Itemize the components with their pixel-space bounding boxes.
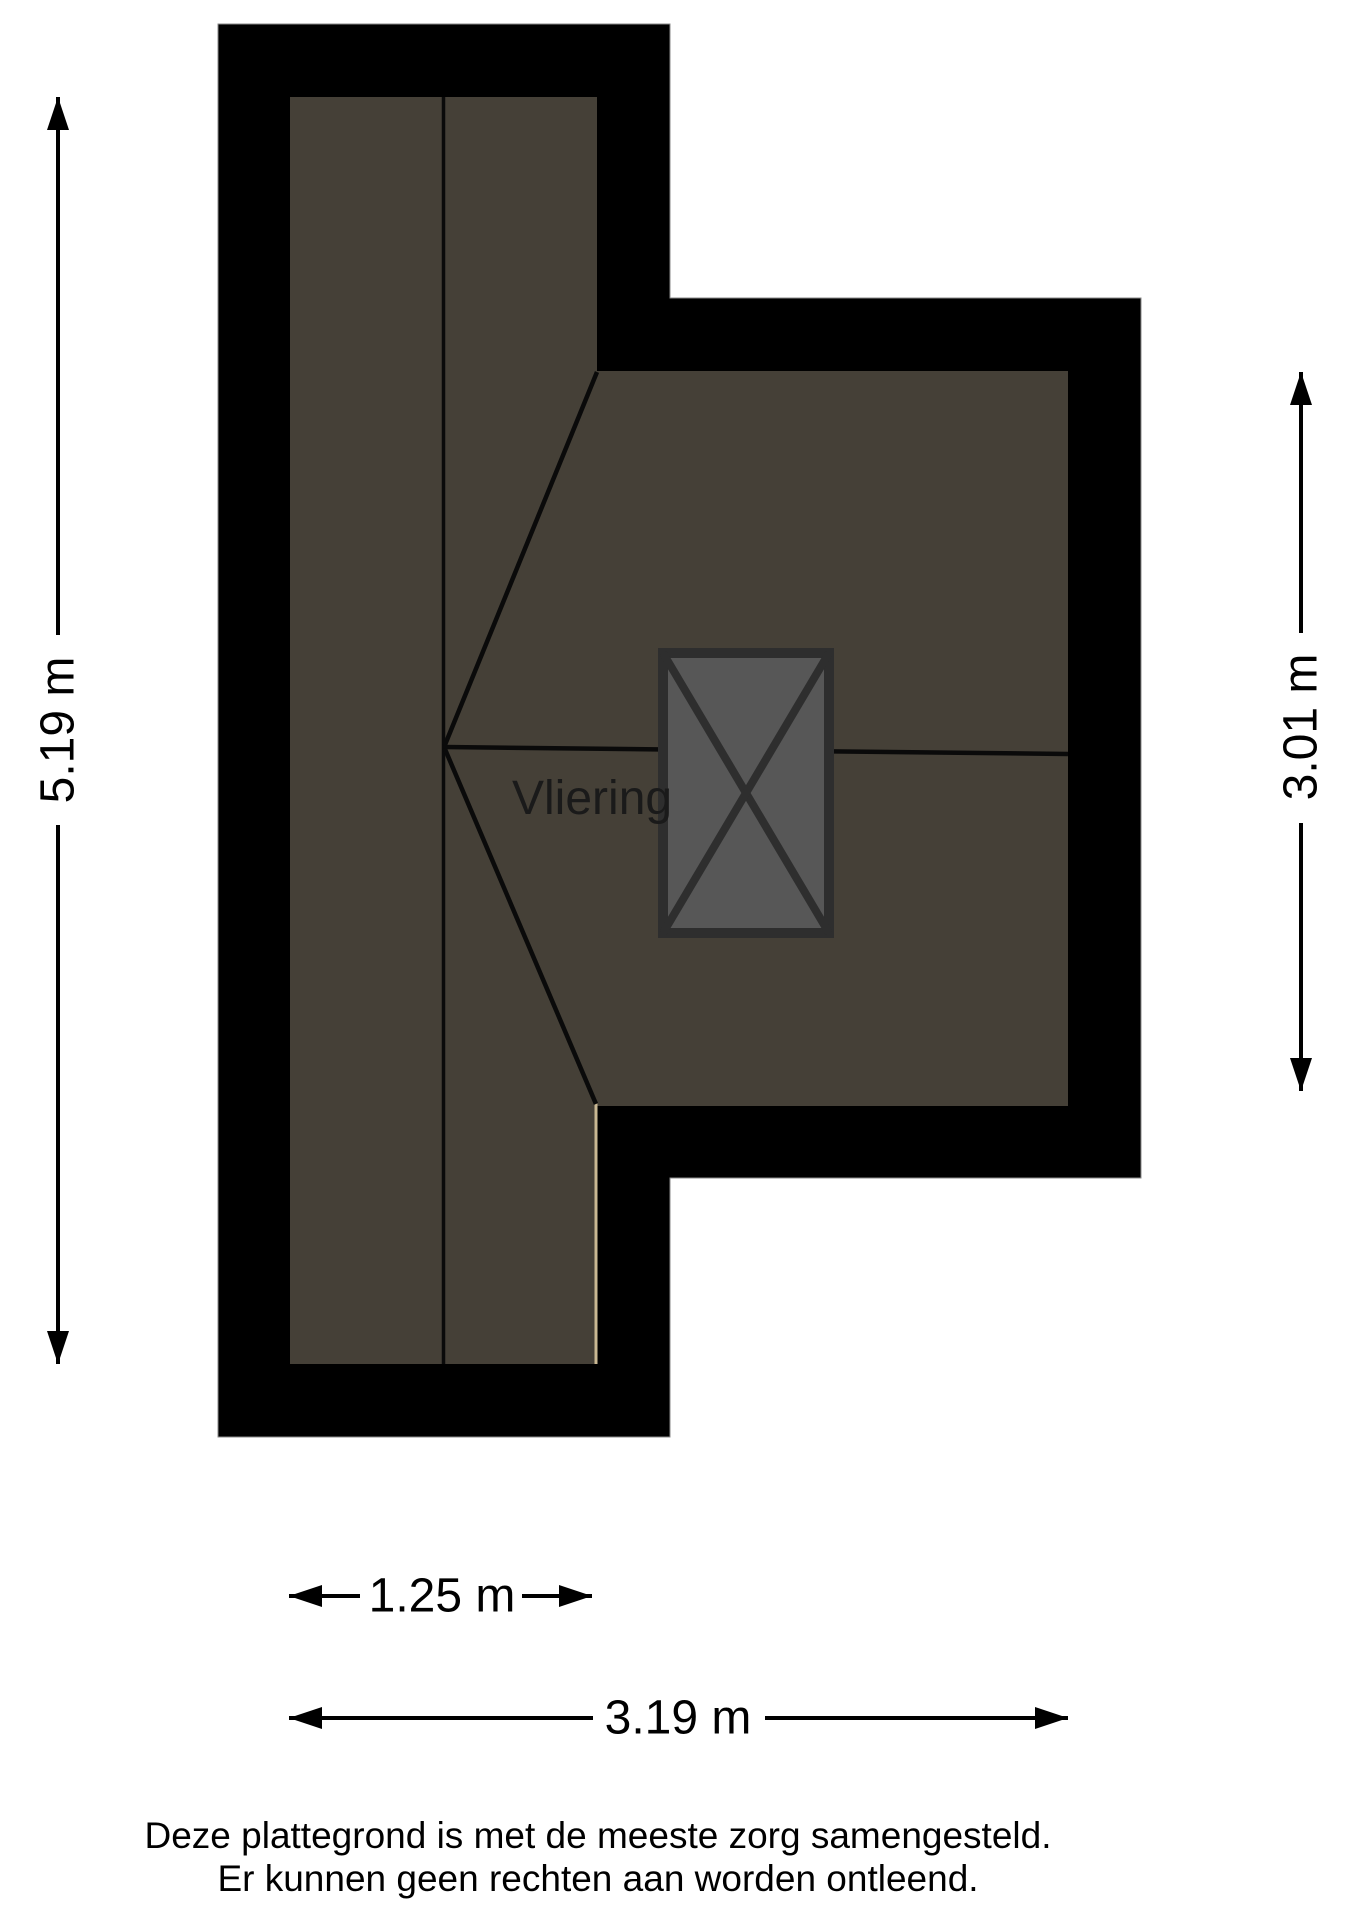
disclaimer-line-1: Deze plattegrond is met de meeste zorg s… [145,1815,1052,1856]
dim-left-arrow-up-icon [47,97,69,130]
dim-left-label: 5.19 m [32,657,85,804]
disclaimer-line-2: Er kunnen geen rechten aan worden ontlee… [217,1858,978,1899]
floorplan-canvas: Vliering 5.19 m 3.01 m 1.25 m 3.19 m Dez… [0,0,1358,1920]
dim-right-arrow-up-icon [1290,372,1312,405]
dim-large-width-arrow-left-icon [289,1707,322,1729]
dim-small-width-arrow-right-icon [559,1585,592,1607]
floorplan-page: Vliering 5.19 m 3.01 m 1.25 m 3.19 m Dez… [0,0,1358,1920]
dim-small-width-arrow-left-icon [289,1585,322,1607]
dim-small-width-label: 1.25 m [369,1570,516,1623]
dim-large-width-arrow-right-icon [1035,1707,1068,1729]
dim-right-label: 3.01 m [1275,654,1328,801]
dim-left-arrow-down-icon [47,1331,69,1364]
dim-right-arrow-down-icon [1290,1058,1312,1091]
dim-large-width-label: 3.19 m [605,1692,752,1745]
room-label: Vliering [512,772,672,825]
